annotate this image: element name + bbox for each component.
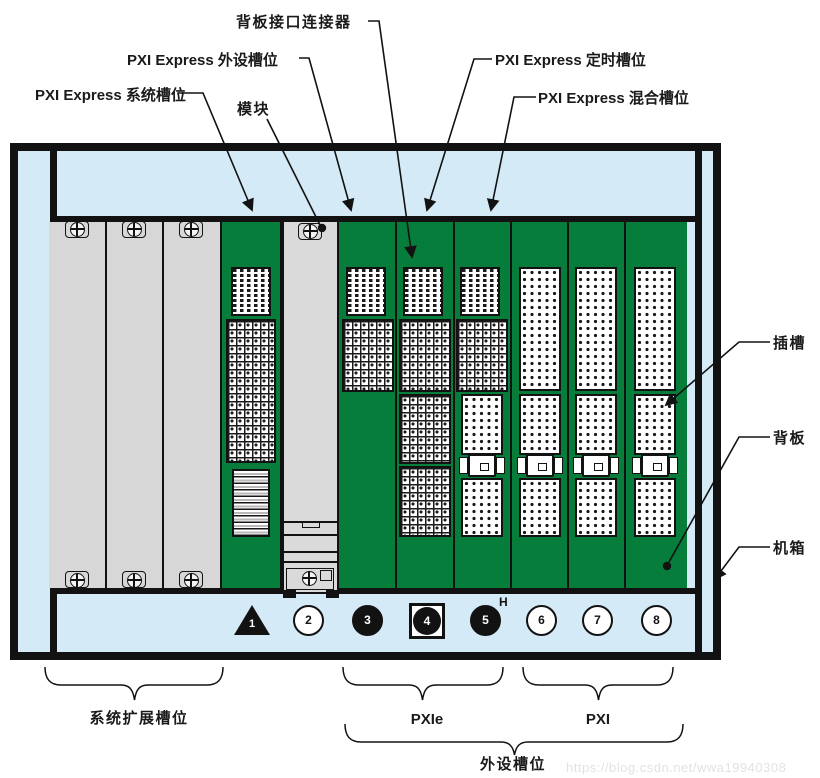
- screw-icon: [65, 221, 89, 238]
- screw-icon: [302, 571, 317, 586]
- screw-icon: [179, 571, 203, 588]
- screw-icon: [179, 221, 203, 238]
- slot-number: 7: [594, 613, 601, 627]
- slot-divider: [624, 222, 626, 588]
- module-foot: [283, 590, 296, 598]
- backplane-connector-dotted-slot6: [519, 394, 561, 455]
- callout-pxie-hybrid-slot: PXI Express 混合槽位: [538, 87, 689, 108]
- screw-icon: [298, 223, 322, 240]
- slot-divider: [395, 222, 397, 588]
- backplane-connector-dotted-slot8: [634, 478, 676, 537]
- slot-marker-3: 3: [352, 605, 383, 636]
- pxi-chassis-diagram: 1 2 3 4 5 H 6 7 8 背板接口连接器 PXI Express 外设…: [0, 0, 820, 778]
- backplane-connector-grid-slot3: [346, 267, 386, 316]
- group-label-system-expansion: 系统扩展槽位: [89, 707, 188, 728]
- backplane-connector-dense-slot4: [399, 319, 451, 392]
- filler-panels: [49, 222, 222, 588]
- callout-slot: 插槽: [773, 332, 806, 353]
- backplane-connector-dotted-slot7: [575, 478, 617, 537]
- callout-chassis: 机箱: [773, 537, 806, 558]
- module-line: [284, 534, 337, 536]
- slot-divider: [510, 222, 512, 588]
- module-ejector-block: [320, 570, 332, 581]
- slot-number: 3: [364, 613, 371, 627]
- backplane-connector-dotted-slot8: [634, 267, 676, 391]
- backplane-connector-dotted-slot6: [519, 267, 561, 391]
- module-latch: [302, 522, 320, 528]
- backplane-connector-grid-slot1: [231, 267, 271, 316]
- group-label-peripheral-slots: 外设槽位: [480, 753, 546, 774]
- connector-key-slot6: [517, 454, 563, 478]
- brace-peripheral: [345, 724, 683, 755]
- callout-module: 模块: [237, 98, 270, 119]
- panel-divider: [105, 222, 107, 588]
- slot-marker-6: 6: [526, 605, 557, 636]
- slot-number: 4: [413, 607, 441, 635]
- slot-marker-8: 8: [641, 605, 672, 636]
- slot-number: 8: [653, 613, 660, 627]
- callout-backplane-connector: 背板接口连接器: [236, 11, 352, 32]
- brace-pxi: [523, 667, 673, 700]
- brace-pxie: [343, 667, 503, 700]
- backplane-connector-dense-slot4: [399, 466, 451, 537]
- slot-number: 1: [249, 618, 255, 630]
- backplane-connector-grid-slot5: [460, 267, 500, 316]
- callout-backplane: 背板: [773, 427, 806, 448]
- connector-key-slot5: [459, 454, 505, 478]
- slot-marker-7: 7: [582, 605, 613, 636]
- group-label-pxie: PXIe: [411, 711, 444, 728]
- module-line: [284, 551, 337, 553]
- backplane-connector-dotted-slot7: [575, 267, 617, 391]
- watermark-url: https://blog.csdn.net/wwa19940308: [566, 760, 786, 775]
- slot-divider: [567, 222, 569, 588]
- slot-marker-5: 5: [470, 605, 501, 636]
- chassis-right-wall: [695, 151, 702, 652]
- backplane-connector-grid-slot4: [403, 267, 443, 316]
- backplane-connector-dense-slot5: [456, 319, 508, 392]
- panel-divider: [162, 222, 164, 588]
- installed-module: [282, 222, 339, 592]
- connector-key-slot7: [573, 454, 619, 478]
- backplane-connector-dotted-slot6: [519, 478, 561, 537]
- cardcage-bottom-rail: [57, 588, 695, 594]
- backplane-connector-dotted-slot7: [575, 394, 617, 455]
- backplane-connector-dense-slot4: [399, 394, 451, 464]
- connector-key-slot8: [632, 454, 678, 478]
- brace-system-expansion: [45, 667, 223, 700]
- backplane-connector-dotted-slot5: [461, 394, 503, 455]
- screw-icon: [122, 571, 146, 588]
- callout-pxie-peripheral-slot: PXI Express 外设槽位: [127, 49, 278, 70]
- line-chassis: [715, 547, 770, 579]
- module-foot: [326, 590, 339, 598]
- backplane-connector-edge-slot1: [232, 469, 270, 537]
- module-ejector: [286, 568, 334, 590]
- slot-number: 2: [305, 613, 312, 627]
- slot-number: 5: [482, 613, 489, 627]
- screw-icon: [122, 221, 146, 238]
- hybrid-slot-h-marker: H: [499, 595, 508, 609]
- callout-pxie-system-slot: PXI Express 系统槽位: [35, 84, 186, 105]
- slot-marker-4: 4: [409, 603, 445, 639]
- backplane-connector-dense-slot1: [226, 319, 276, 463]
- slot-marker-2: 2: [293, 605, 324, 636]
- callout-pxie-timing-slot: PXI Express 定时槽位: [495, 49, 646, 70]
- backplane-connector-dotted-slot5: [461, 478, 503, 537]
- slot-number: 6: [538, 613, 545, 627]
- backplane-connector-dotted-slot8: [634, 394, 676, 455]
- screw-icon: [65, 571, 89, 588]
- slot-marker-1: 1: [234, 605, 270, 635]
- backplane-connector-dense-slot3: [342, 319, 394, 392]
- group-label-pxi: PXI: [586, 711, 610, 728]
- module-line: [284, 561, 337, 563]
- slot-divider: [453, 222, 455, 588]
